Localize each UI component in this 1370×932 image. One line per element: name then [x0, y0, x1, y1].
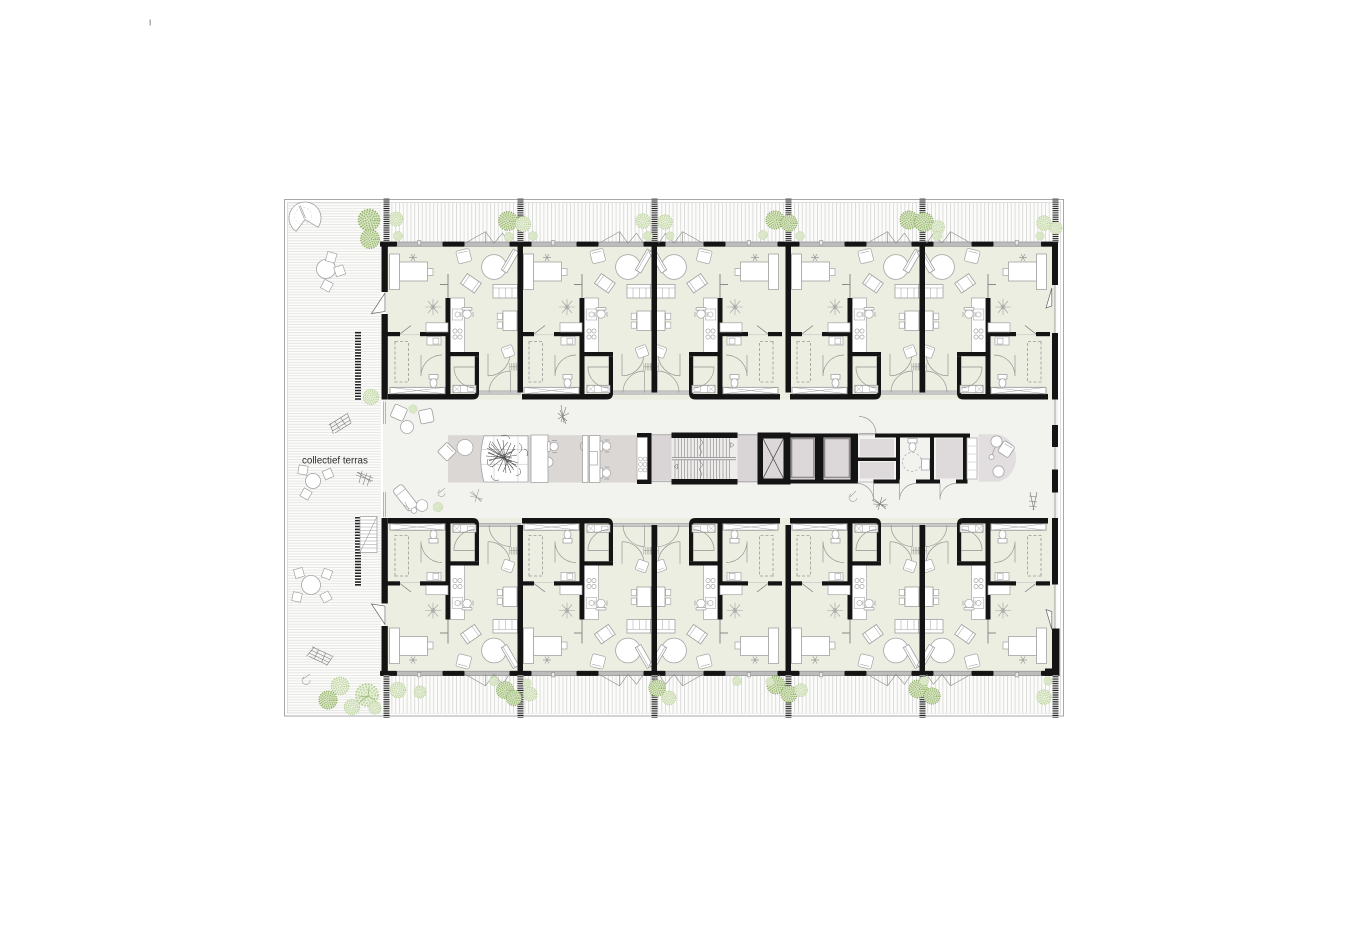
svg-text:collectief terras: collectief terras: [302, 456, 368, 467]
